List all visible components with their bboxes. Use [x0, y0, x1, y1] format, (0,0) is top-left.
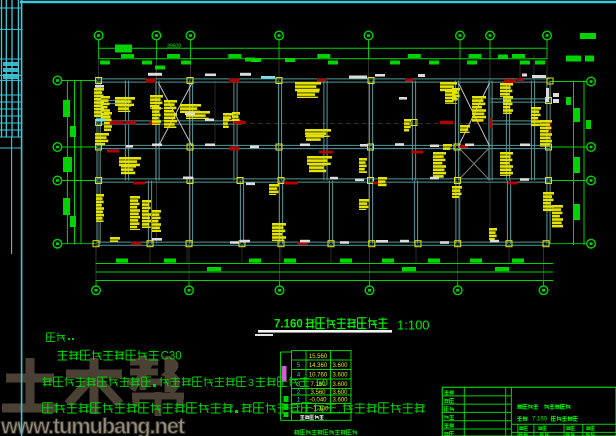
svg-text:3.600: 3.600 [332, 398, 348, 404]
svg-text:3.600: 3.600 [332, 363, 348, 369]
svg-text:www.tumubang.net: www.tumubang.net [0, 414, 186, 436]
svg-text:,: , [338, 405, 341, 416]
svg-text:14.360: 14.360 [309, 363, 328, 369]
svg-text:7.160: 7.160 [310, 382, 326, 388]
svg-text:7.160: 7.160 [274, 319, 303, 331]
svg-text:3.600: 3.600 [332, 390, 348, 396]
svg-text:3: 3 [248, 377, 254, 389]
svg-text:3.600: 3.600 [332, 382, 348, 388]
svg-text:3.560: 3.560 [310, 390, 326, 396]
svg-text:15.560: 15.560 [309, 354, 328, 360]
svg-text:10.760: 10.760 [309, 373, 328, 379]
svg-text:7.160: 7.160 [532, 417, 548, 423]
svg-text:1:100: 1:100 [397, 318, 430, 333]
svg-text:-1.100: -1.100 [311, 407, 329, 413]
svg-text:39600: 39600 [167, 43, 181, 49]
svg-text:-0.040: -0.040 [309, 398, 327, 404]
svg-text:3.600: 3.600 [332, 373, 348, 379]
svg-text:C30: C30 [161, 351, 182, 363]
